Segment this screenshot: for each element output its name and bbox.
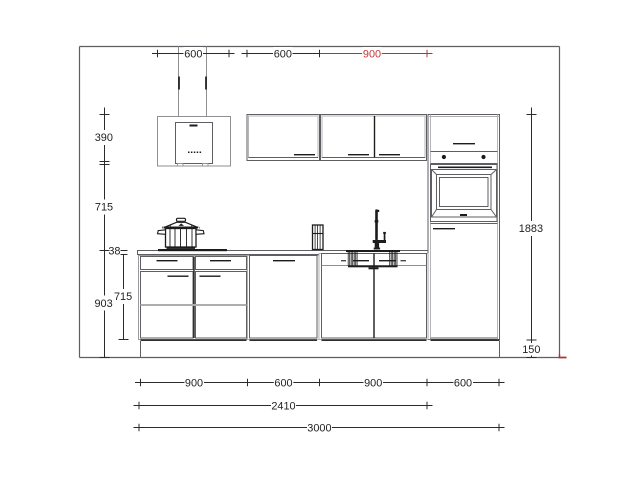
svg-text:600: 600 <box>184 48 202 60</box>
svg-text:3000: 3000 <box>307 422 331 434</box>
svg-text:900: 900 <box>363 48 381 60</box>
svg-text:715: 715 <box>95 202 113 214</box>
svg-text:900: 900 <box>185 377 203 389</box>
svg-text:900: 900 <box>364 377 382 389</box>
svg-text:390: 390 <box>95 132 113 144</box>
svg-text:600: 600 <box>274 48 292 60</box>
svg-text:2410: 2410 <box>271 400 295 412</box>
svg-text:903: 903 <box>95 298 113 310</box>
svg-text:715: 715 <box>114 291 132 303</box>
svg-text:38: 38 <box>108 245 120 257</box>
svg-text:150: 150 <box>522 344 540 356</box>
svg-text:600: 600 <box>274 377 292 389</box>
svg-text:1883: 1883 <box>519 223 543 235</box>
svg-text:600: 600 <box>454 377 472 389</box>
